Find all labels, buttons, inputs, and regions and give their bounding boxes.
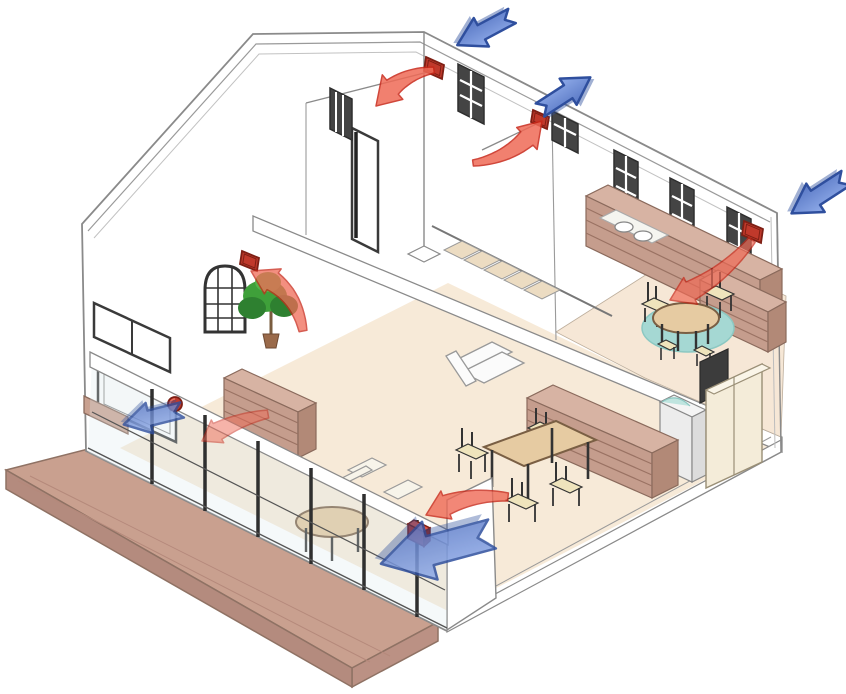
- plant-pot: [263, 334, 279, 348]
- pot-2: [634, 231, 652, 241]
- ventilation-diagram: [0, 0, 846, 694]
- supply-arrow-right-wall: [778, 161, 846, 229]
- pot-1: [615, 222, 633, 232]
- arched-window: [205, 266, 245, 332]
- plant-foliage-2: [238, 297, 266, 319]
- house-cutaway-svg: [0, 0, 846, 694]
